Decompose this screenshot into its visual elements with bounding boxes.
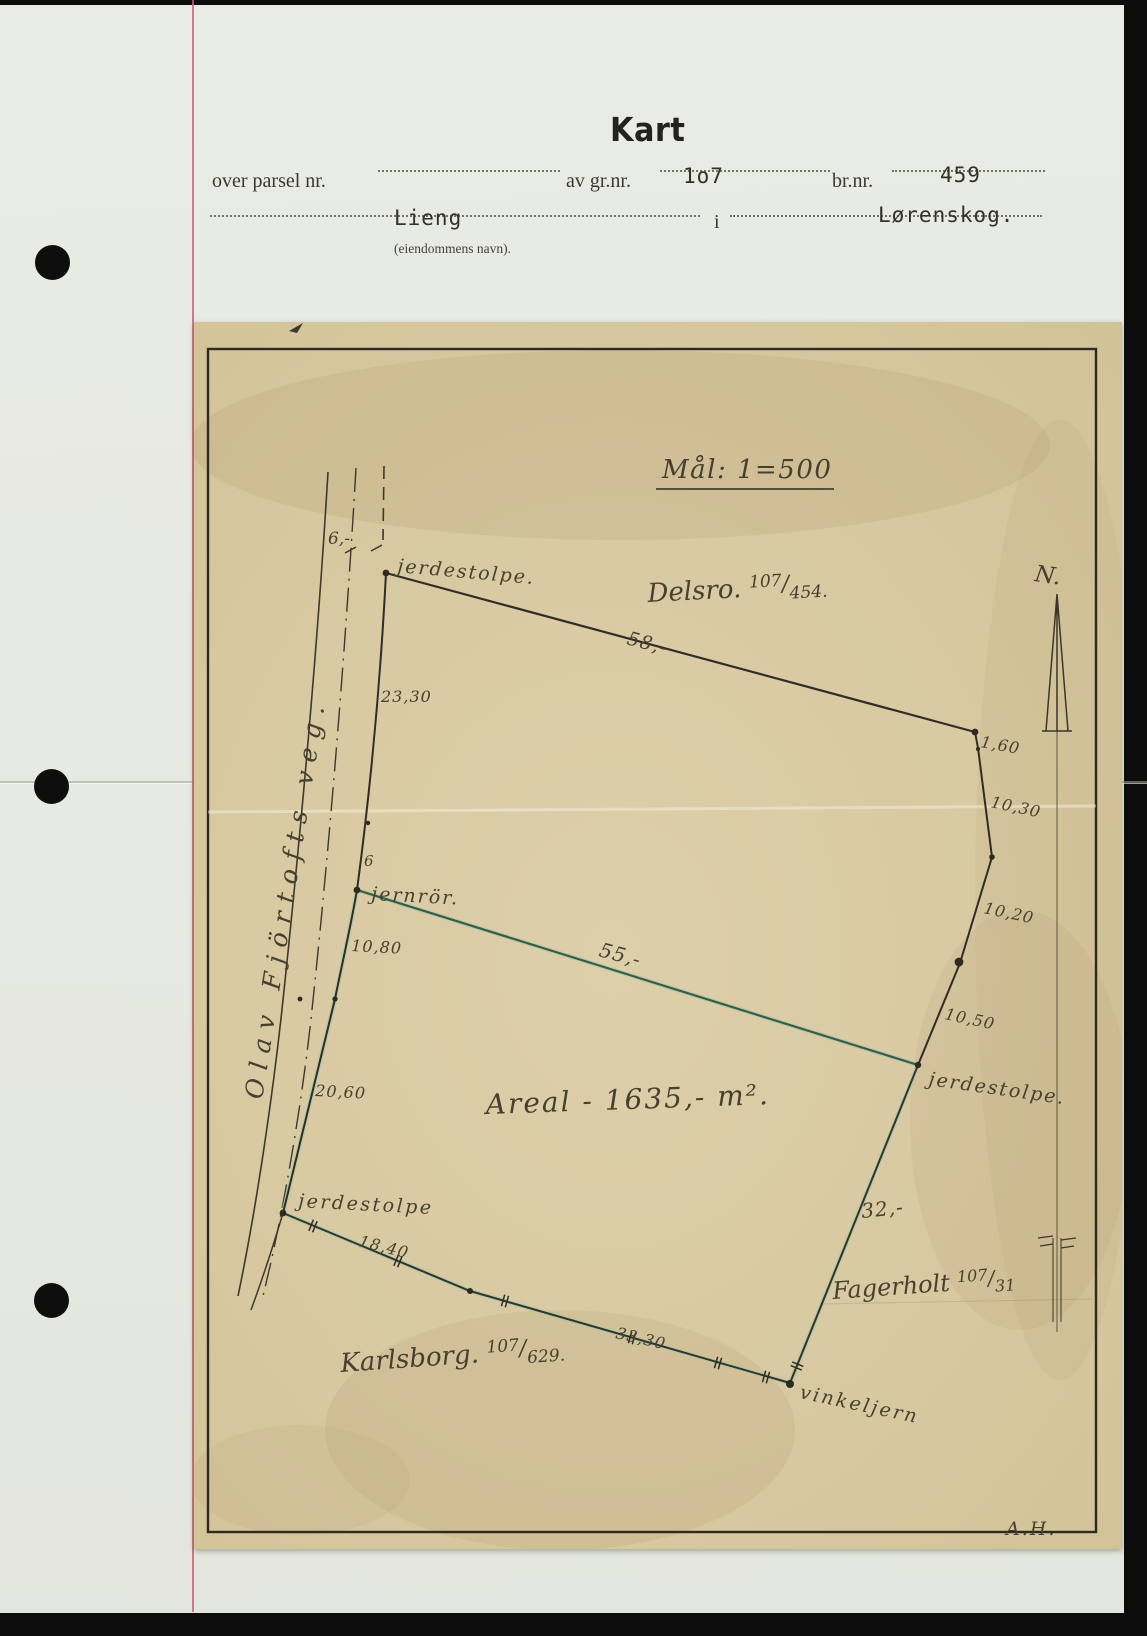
- parcel-boundary-green-glow: [283, 890, 918, 1383]
- map-crease: [208, 806, 1096, 812]
- map-sheet: Mål: 1=500 Delsro. 107/454. N. 58,- 1,60…: [194, 322, 1122, 1549]
- punch-hole: [34, 769, 69, 804]
- measure-18-40: 18,40: [357, 1231, 411, 1262]
- municipality-value: Lørenskog.: [878, 203, 1014, 227]
- measure-road-width: 6,-: [328, 529, 350, 549]
- measure-20-60: 20,60: [314, 1081, 367, 1103]
- marker-jerdestolpe-top: jerdestolpe.: [393, 555, 536, 589]
- label-br-nr: br.nr.: [832, 170, 873, 193]
- marker-vinkeljern: vinkeljern: [798, 1381, 921, 1428]
- measure-10-80: 10,80: [351, 936, 403, 958]
- scanned-page: Kart over parsel nr. av gr.nr. 1o7 br.nr…: [0, 0, 1147, 1636]
- scan-edge: [0, 0, 1147, 5]
- cadastral-map-drawing: Mål: 1=500 Delsro. 107/454. N. 58,- 1,60…: [194, 322, 1122, 1549]
- property-name-value: Lieng: [394, 206, 462, 230]
- pen-mark: [289, 323, 303, 333]
- punch-hole: [34, 1283, 69, 1318]
- page-title: Kart: [610, 110, 685, 149]
- label-gr-nr: av gr.nr.: [566, 170, 631, 193]
- measure-32: 32,-: [860, 1195, 905, 1223]
- marker-jerdestolpe-sw: jerdestolpe: [294, 1190, 434, 1219]
- marker-jernror: jernrör.: [367, 883, 460, 910]
- area-label: Areal - 1635,- m².: [482, 1078, 770, 1121]
- north-label: N.: [1032, 561, 1062, 591]
- label-parsel-nr: over parsel nr.: [212, 170, 326, 193]
- label-i: i: [714, 211, 720, 234]
- road-lines: [238, 466, 384, 1310]
- map-scale-label: Mål: 1=500: [661, 454, 832, 485]
- road-name-label: Olav Fjörtofts veg.: [239, 695, 331, 1101]
- measure-58: 58,-: [625, 628, 670, 660]
- measure-road-width-mid: 6: [364, 852, 374, 870]
- property-name-caption: (eiendommens navn).: [394, 241, 511, 257]
- br-nr-value: 459: [940, 163, 981, 187]
- scan-edge: [1124, 0, 1147, 1636]
- neighbor-delsro-label: Delsro. 107/454.: [646, 569, 828, 611]
- scan-edge: [0, 1613, 1147, 1636]
- gr-nr-value: 1o7: [683, 164, 724, 188]
- measure-23-30: 23,30: [380, 687, 432, 706]
- dotted-line: [378, 170, 560, 172]
- punch-hole: [35, 245, 70, 280]
- surveyor-initials: A.H.: [1004, 1518, 1056, 1540]
